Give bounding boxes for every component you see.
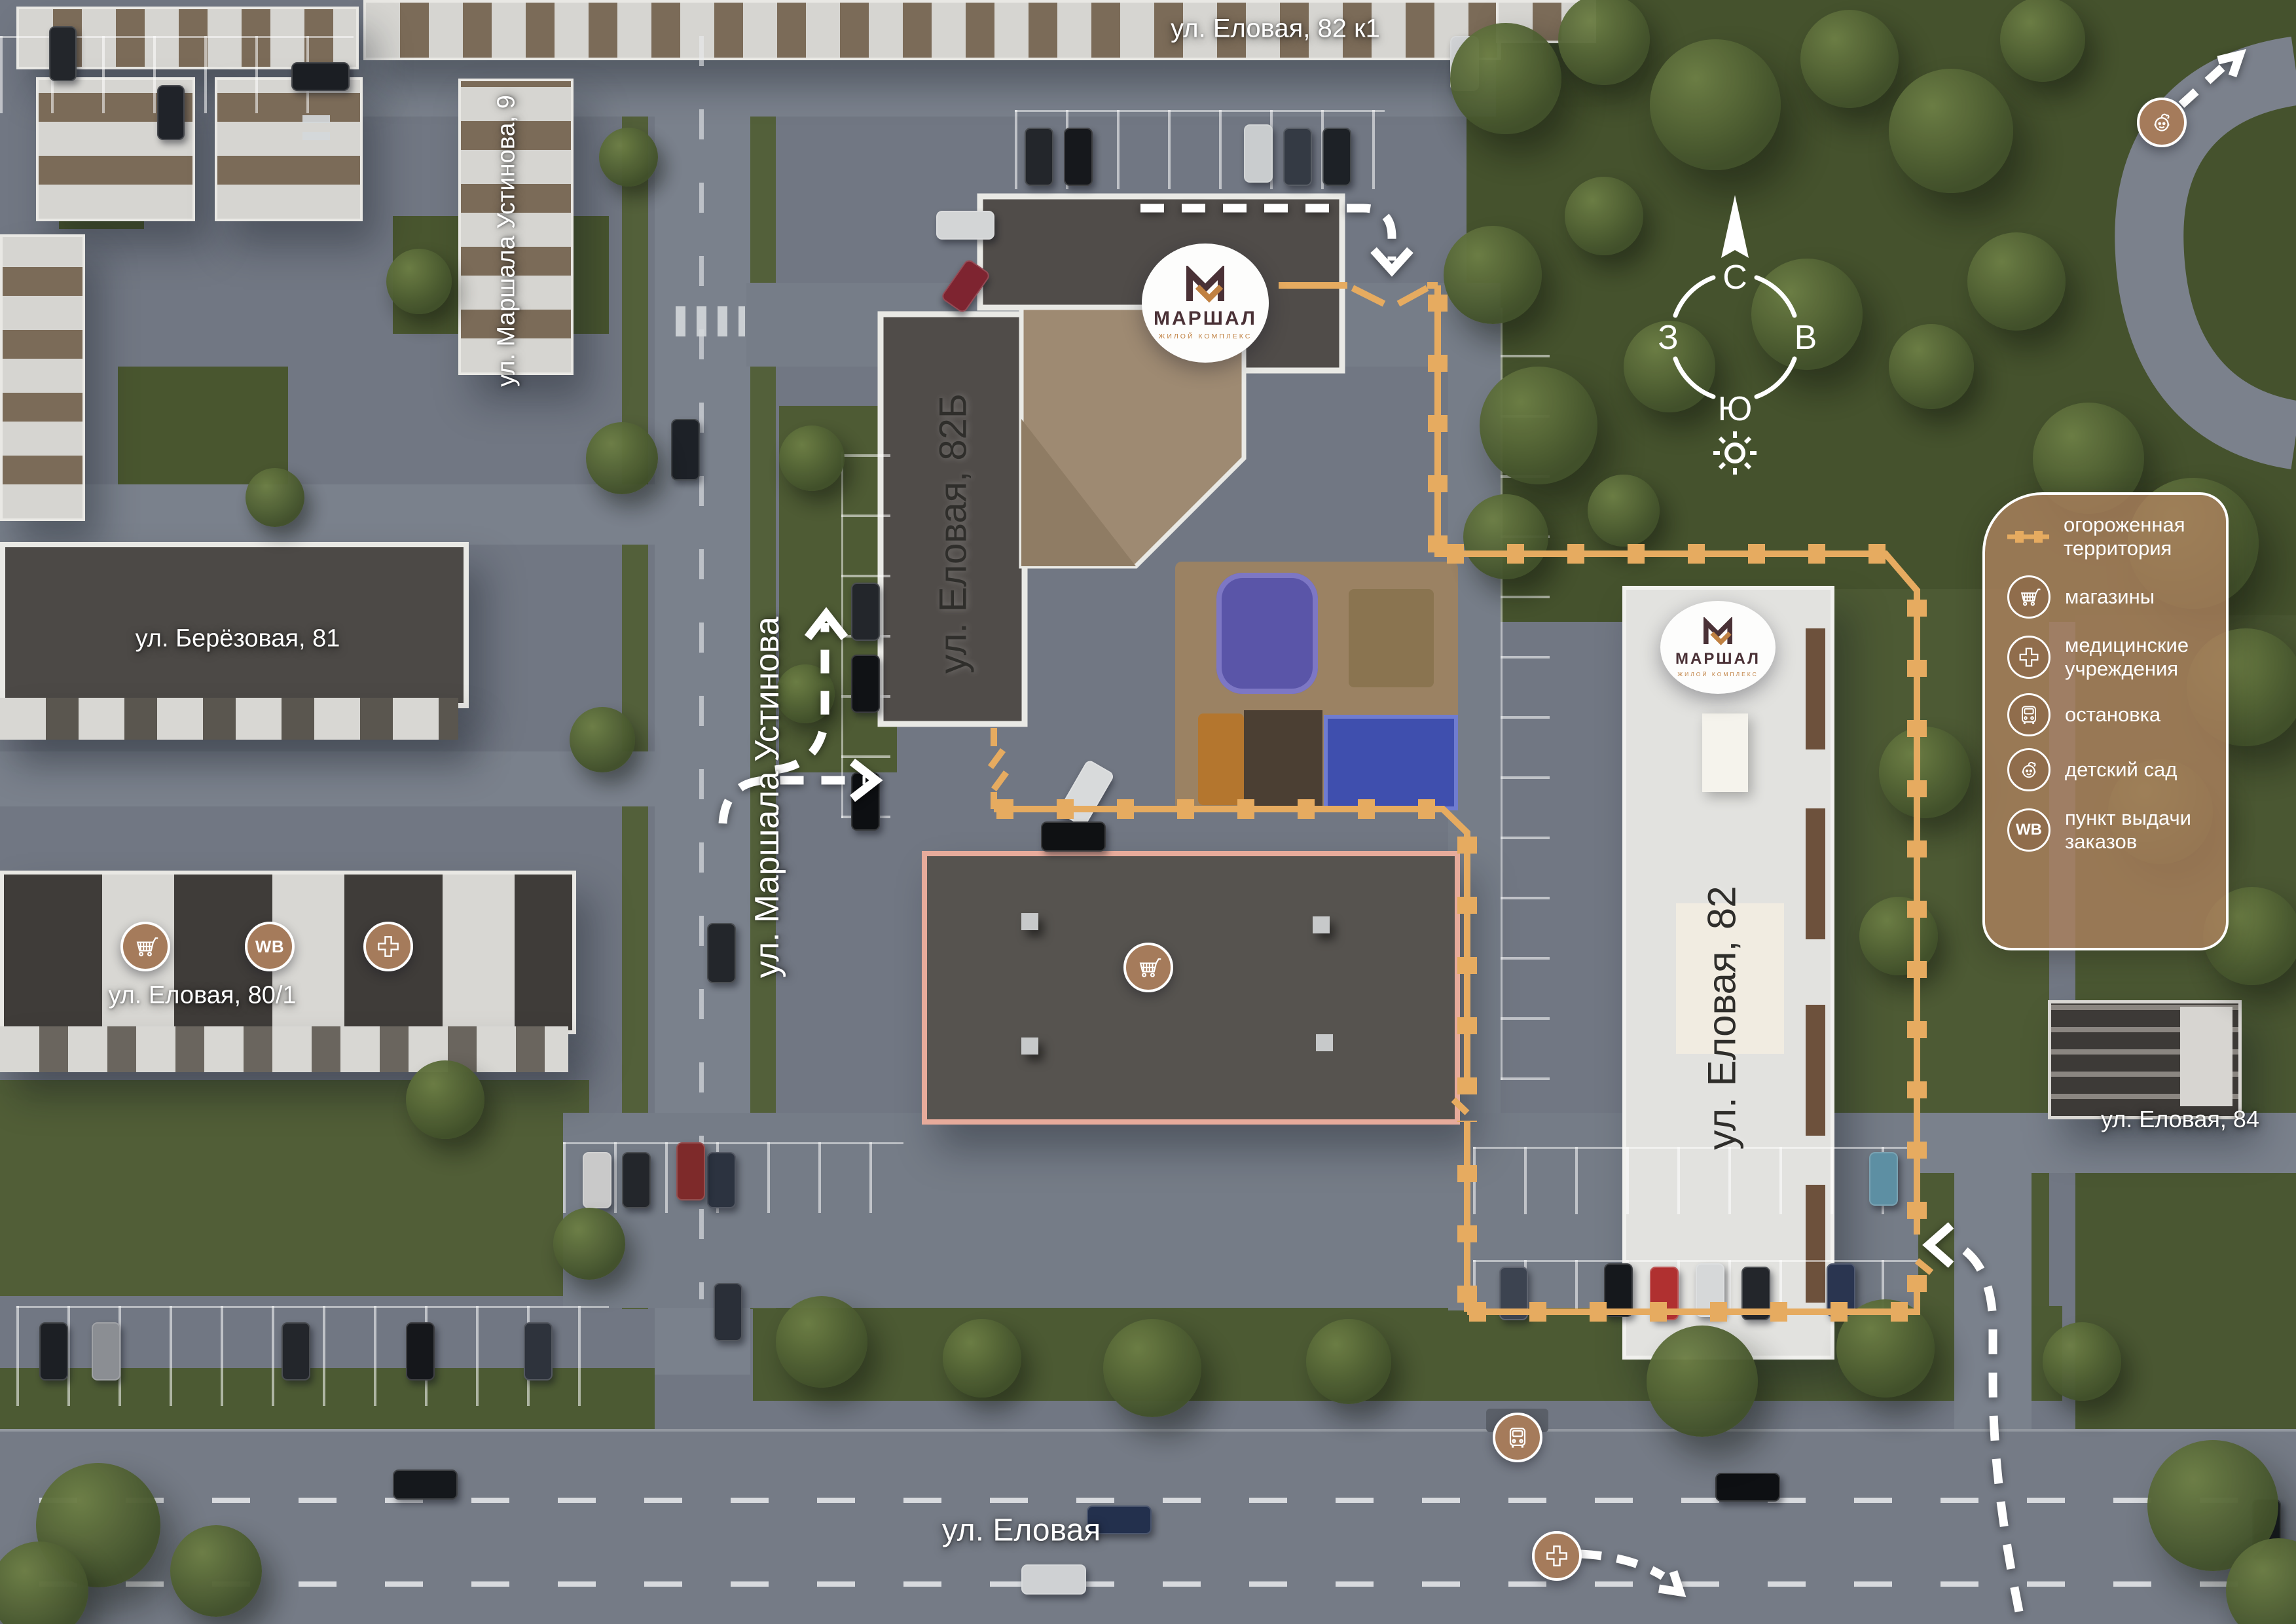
- child-face-icon: [2147, 108, 2176, 137]
- brand-subtitle: ЖИЛОЙ КОМПЛЕКС: [1677, 671, 1758, 677]
- legend-item-bus-stop: остановка: [2007, 693, 2160, 736]
- street-label-ustinova-9: ул. Маршала Устинова, 9: [493, 95, 521, 387]
- poi-bus-stop-icon: [1493, 1413, 1542, 1462]
- legend-label: пункт выдачи заказов: [2065, 806, 2221, 854]
- annotation-overlay: С В Ю З: [0, 0, 2296, 1624]
- compass-west-label: З: [1658, 319, 1678, 357]
- medical-cross-icon: [374, 932, 403, 961]
- brand-badge-82: МАРШАЛ ЖИЛОЙ КОМПЛЕКС: [1660, 601, 1776, 694]
- poi-shops-icon: [120, 922, 170, 971]
- legend-item-fence: огороженная территория: [2007, 513, 2219, 560]
- compass-north-arrow: [1721, 195, 1749, 258]
- child-face-icon: [2007, 748, 2050, 791]
- compass-east-label: В: [1795, 319, 1817, 357]
- legend-label: медицинские учреждения: [2065, 634, 2221, 681]
- poi-supermarket-icon: [1123, 943, 1173, 992]
- bus-icon: [2007, 693, 2050, 736]
- street-label-berezovaya-81: ул. Берёзовая, 81: [136, 625, 340, 653]
- medical-cross-icon: [2007, 636, 2050, 679]
- fence-line-icon: [2007, 530, 2049, 544]
- poi-wb-pickup-icon: WB: [245, 922, 295, 971]
- legend-item-wb-pickup: WB пункт выдачи заказов: [2007, 806, 2221, 854]
- poi-kindergarten-icon: [2137, 98, 2187, 147]
- shopping-cart-icon: [2007, 575, 2050, 619]
- brand-badge-82b: МАРШАЛ ЖИЛОЙ КОМПЛЕКС: [1142, 244, 1269, 363]
- building-label-elovaya-82b: ул. Еловая, 82Б: [932, 393, 975, 674]
- site-plan-map: С В Ю З ул. Еловая, 82 к1 ул. Маршала Ус…: [0, 0, 2296, 1624]
- fenced-territory-boundary: [991, 285, 1931, 1312]
- medical-cross-icon: [1542, 1542, 1571, 1570]
- building-label-elovaya-82: ул. Еловая, 82: [1700, 886, 1745, 1149]
- street-label-elovaya-80-1: ул. Еловая, 80/1: [108, 982, 296, 1010]
- legend-label: детский сад: [2065, 758, 2177, 782]
- legend-item-medical: медицинские учреждения: [2007, 634, 2221, 681]
- sun-icon: [1713, 431, 1757, 475]
- legend-label: огороженная территория: [2064, 513, 2219, 560]
- wb-label: WB: [255, 937, 284, 957]
- map-legend: огороженная территория магазины медицинс…: [1982, 492, 2229, 950]
- shopping-cart-icon: [131, 932, 160, 961]
- street-label-elovaya-82k1: ул. Еловая, 82 к1: [1171, 14, 1380, 44]
- street-label-elovaya-84: ул. Еловая, 84: [2101, 1106, 2259, 1133]
- compass-north-label: С: [1722, 259, 1747, 297]
- brand-name: МАРШАЛ: [1154, 308, 1257, 330]
- street-label-elovaya: ул. Еловая: [942, 1513, 1101, 1549]
- compass-south-label: Ю: [1718, 390, 1753, 428]
- poi-medical-south-icon: [1532, 1531, 1582, 1581]
- wb-label: WB: [2016, 821, 2042, 839]
- legend-item-shops: магазины: [2007, 575, 2155, 619]
- street-label-ustinova: ул. Маршала Устинова: [748, 617, 787, 978]
- brand-logo-icon: [1701, 617, 1735, 646]
- legend-item-kindergarten: детский сад: [2007, 748, 2177, 791]
- brand-subtitle: ЖИЛОЙ КОМПЛЕКС: [1159, 333, 1252, 340]
- poi-medical-icon: [363, 922, 413, 971]
- brand-logo-icon: [1184, 266, 1227, 304]
- wb-icon: WB: [2007, 808, 2050, 852]
- shopping-cart-icon: [1134, 953, 1163, 982]
- legend-label: магазины: [2065, 585, 2155, 609]
- compass: С В Ю З: [1658, 195, 1817, 475]
- legend-label: остановка: [2065, 703, 2160, 727]
- bus-icon: [1503, 1423, 1532, 1452]
- brand-name: МАРШАЛ: [1675, 650, 1760, 668]
